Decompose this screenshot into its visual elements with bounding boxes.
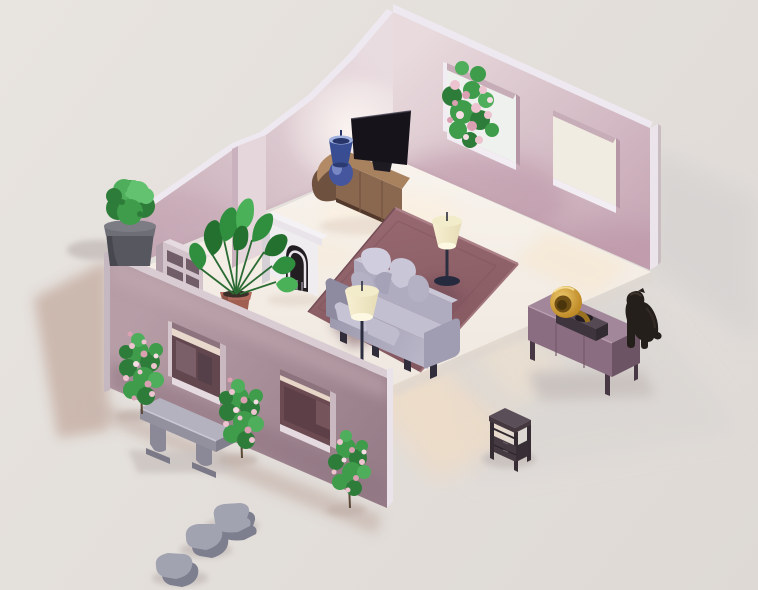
window-2-jamb-right: [616, 138, 620, 209]
isometric-room-scene: [0, 0, 758, 590]
window-b-jamb-right: [330, 391, 336, 449]
topiary[interactable]: [104, 179, 156, 266]
wall-right-end-cap: [650, 124, 658, 270]
window-a-interior-shape-2: [198, 352, 212, 386]
tv-screen: [351, 111, 411, 165]
bush-shadow-2: [218, 454, 258, 466]
window-a-jamb-left: [168, 321, 172, 377]
lamp-rear-pole: [446, 246, 449, 280]
table-lamp[interactable]: [329, 130, 353, 186]
garden-wall-south-cap: [387, 367, 393, 508]
lamp-front-shade-glow: [351, 313, 373, 321]
lamp-rear-base: [434, 276, 460, 286]
lamp-blue-shade-inner: [333, 138, 350, 144]
window-1-jamb-right: [516, 94, 520, 166]
wall-right-outer-edge: [658, 124, 661, 265]
lamp-front-finial: [361, 281, 363, 291]
lamp-rear-shade-glow: [438, 243, 456, 250]
garden-wall-west-cap: [104, 250, 110, 392]
scene-canvas: [0, 0, 758, 590]
gramophone-horn-deep: [557, 300, 567, 310]
lamp-blue-shade-bottom: [333, 163, 348, 168]
lamp-rear-finial: [446, 212, 448, 221]
bush-shadow-3: [326, 504, 366, 516]
